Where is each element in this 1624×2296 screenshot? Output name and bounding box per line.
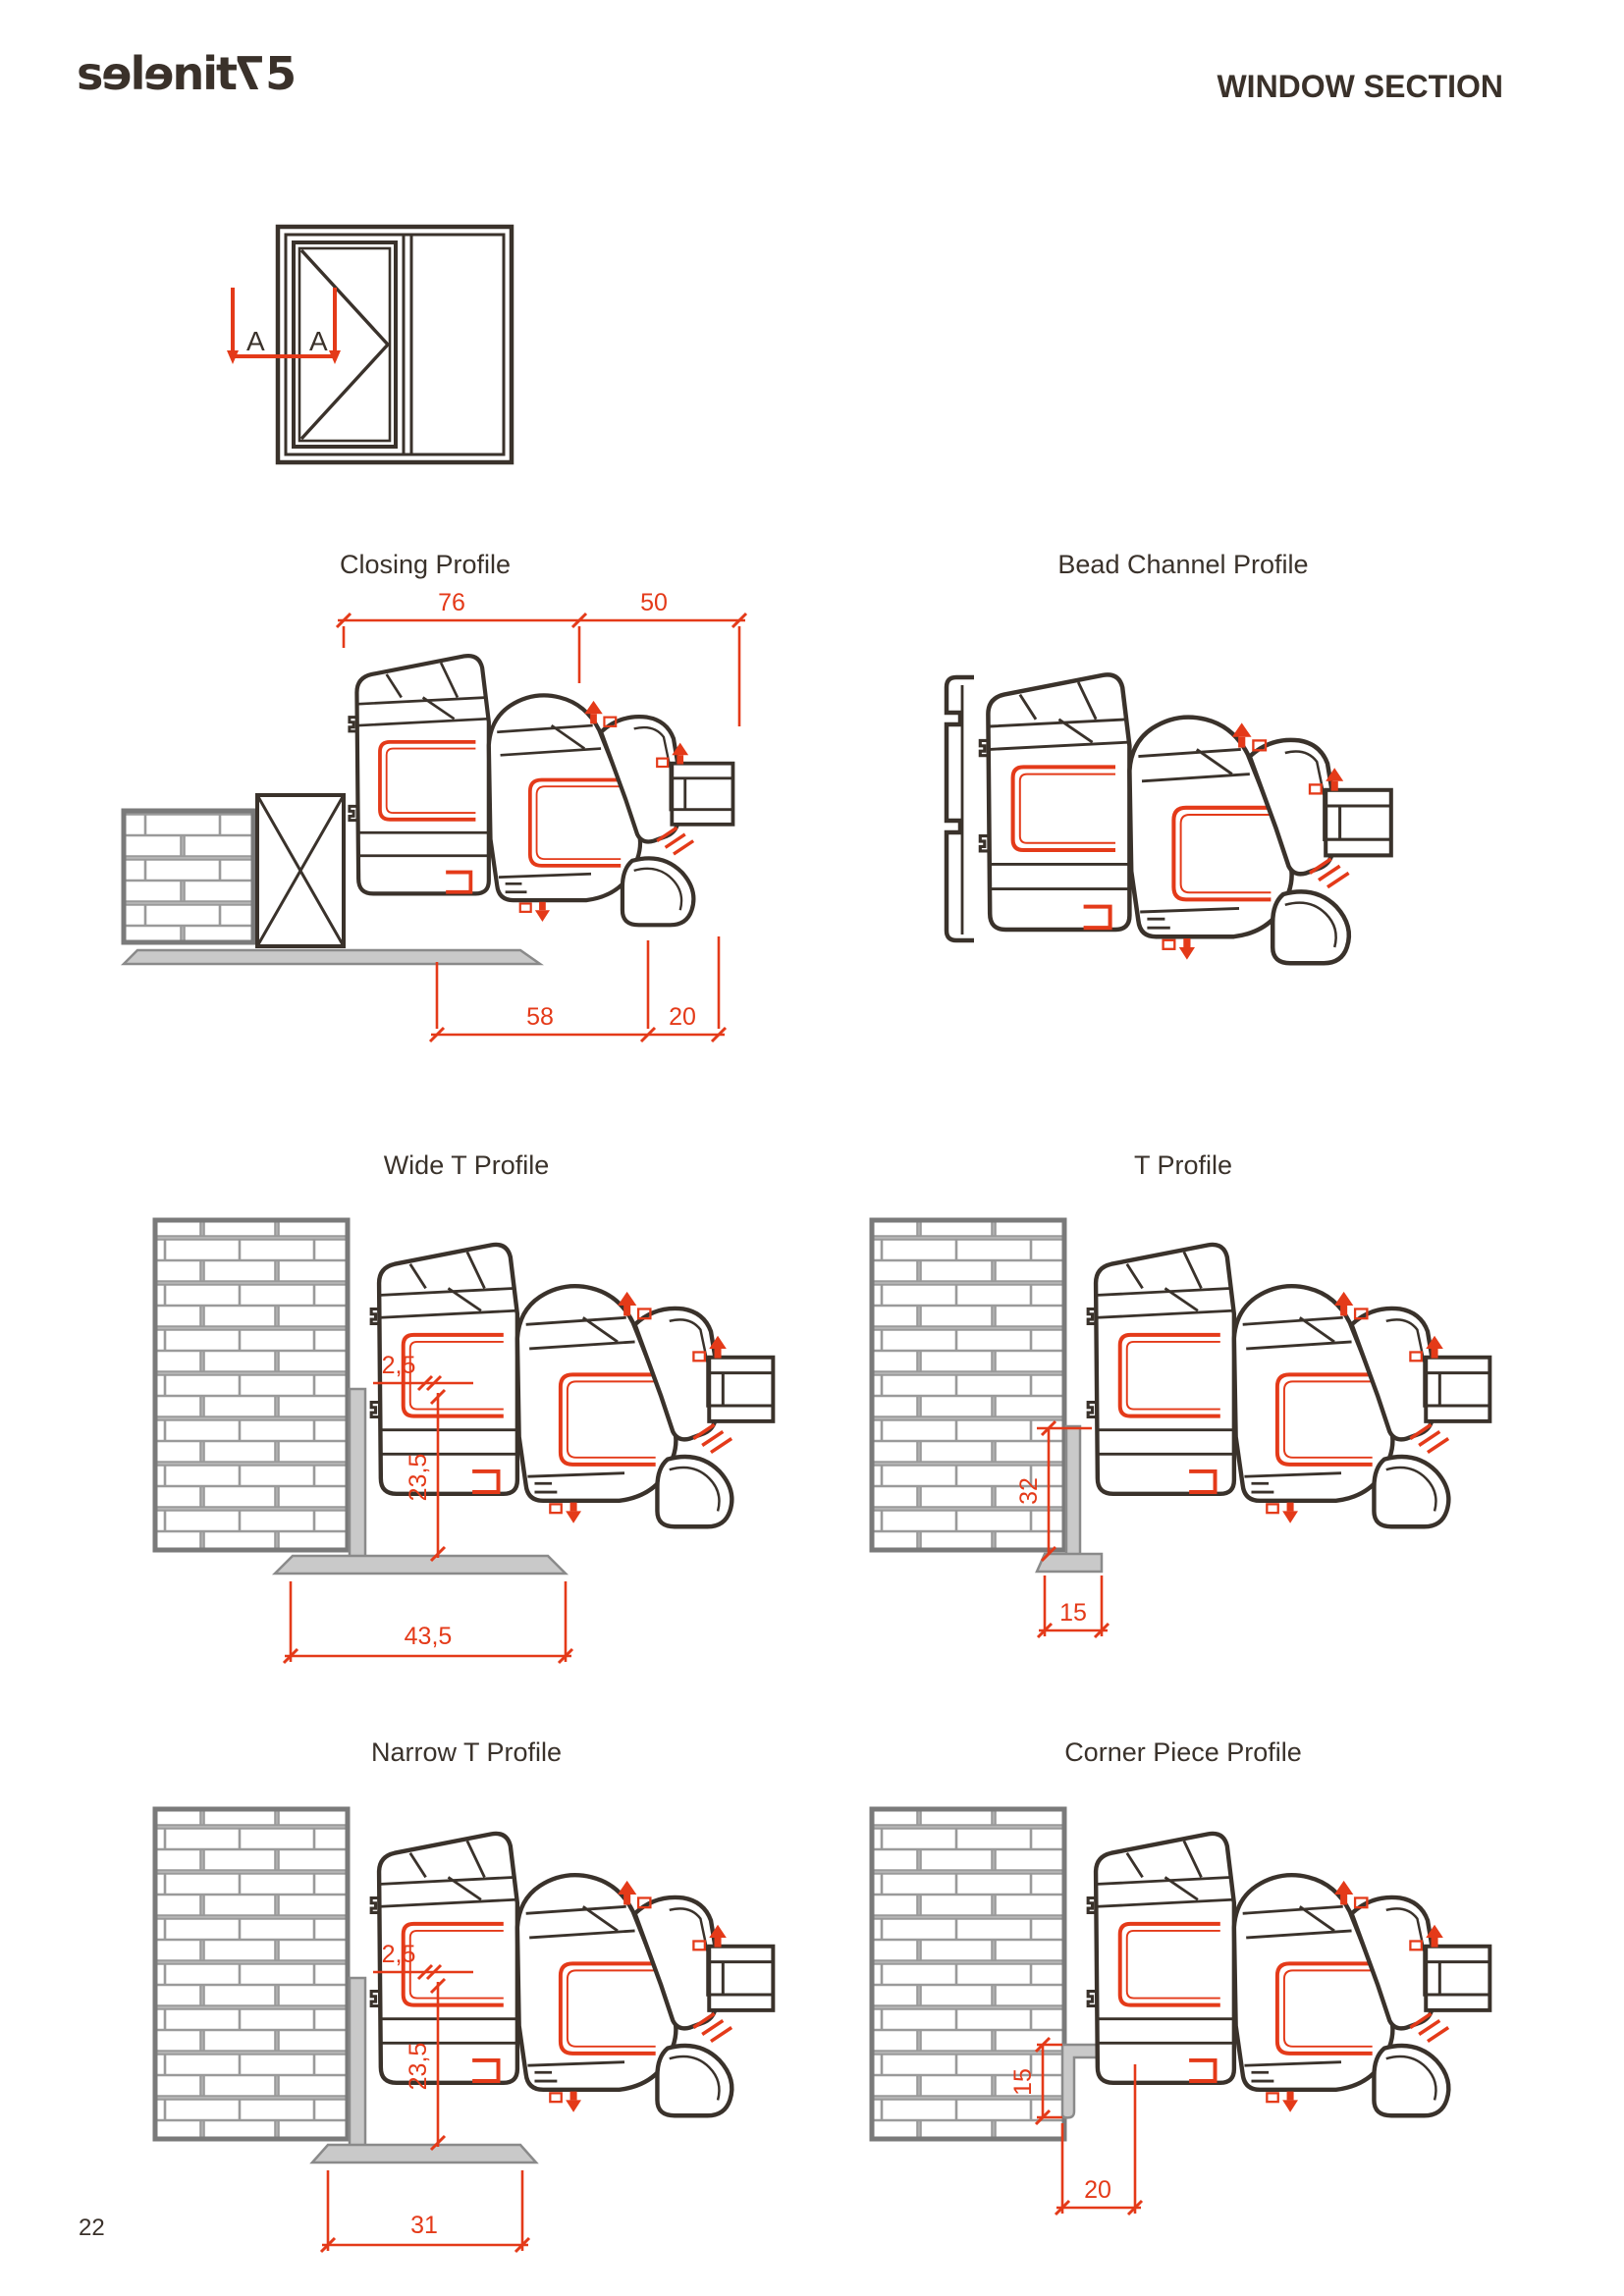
title-bead-channel-profile: Bead Channel Profile (889, 550, 1478, 580)
brick-wall (155, 1220, 348, 1550)
dimension-label: 43,5 (405, 1623, 453, 1650)
profile-cross-section (1088, 1245, 1489, 1526)
dimension-label: 31 (410, 2212, 438, 2239)
dimension-label: 20 (1084, 2176, 1111, 2204)
title-t-profile: T Profile (889, 1150, 1478, 1181)
bead-channel-flange (947, 677, 974, 940)
profile-cross-section (980, 674, 1391, 963)
dimension-label: 2,5 (382, 1941, 416, 1968)
bead-channel-profile-drawing (923, 618, 1434, 1011)
dimension-label: 20 (669, 1003, 696, 1031)
title-narrow-t-profile: Narrow T Profile (172, 1737, 761, 1768)
window-sill (124, 950, 540, 964)
dimension-label: 23,5 (405, 1454, 432, 1502)
dimension-width: 31 (321, 2170, 529, 2252)
title-closing-profile: Closing Profile (131, 550, 720, 580)
corner-piece-profile-drawing: 15 20 (844, 1782, 1512, 2282)
brand-logo: sɘlɘnit75 (77, 47, 295, 100)
catalog-page: sɘlɘnit75 WINDOW SECTION (0, 0, 1624, 2296)
dimension-label: 15 (1059, 1599, 1087, 1627)
page-title: WINDOW SECTION (1217, 69, 1503, 105)
dimension-label: 23,5 (405, 2043, 432, 2091)
section-label-a1: A (246, 326, 265, 356)
logo-text: sɘlɘnit (77, 47, 236, 100)
profile-cross-section (350, 656, 733, 925)
brick-wall (124, 811, 253, 942)
dimension-label: 76 (438, 589, 465, 616)
brick-wall (155, 1809, 348, 2139)
page-number: 22 (79, 2215, 105, 2242)
narrow-t-profile-drawing: 2,5 23,5 31 (128, 1782, 795, 2282)
dimension-label: 2,5 (382, 1352, 416, 1379)
logo-mirrored-seven: 7 (236, 47, 265, 100)
window-elevation-diagram: A A (221, 211, 525, 476)
dimension-width: 43,5 (284, 1581, 572, 1663)
closing-profile-drawing: 76 50 58 20 (108, 587, 746, 1068)
dimension-label: 32 (1015, 1477, 1043, 1505)
t-profile-drawing: 32 15 (844, 1193, 1512, 1693)
dimension-label: 58 (526, 1003, 554, 1031)
section-label-a2: A (309, 326, 328, 356)
wide-t-profile-drawing: 2,5 23,5 43,5 (128, 1193, 795, 1693)
dimension-label: 50 (640, 589, 668, 616)
dimension-width: 15 (1038, 1575, 1109, 1637)
title-corner-piece-profile: Corner Piece Profile (889, 1737, 1478, 1768)
logo-five: 5 (265, 47, 295, 100)
dimension-label: 15 (1009, 2068, 1037, 2096)
title-wide-t-profile: Wide T Profile (172, 1150, 761, 1181)
closing-filler-box (257, 795, 344, 946)
profile-cross-section (1088, 1834, 1489, 2115)
section-cut-marker: A A (227, 288, 341, 364)
